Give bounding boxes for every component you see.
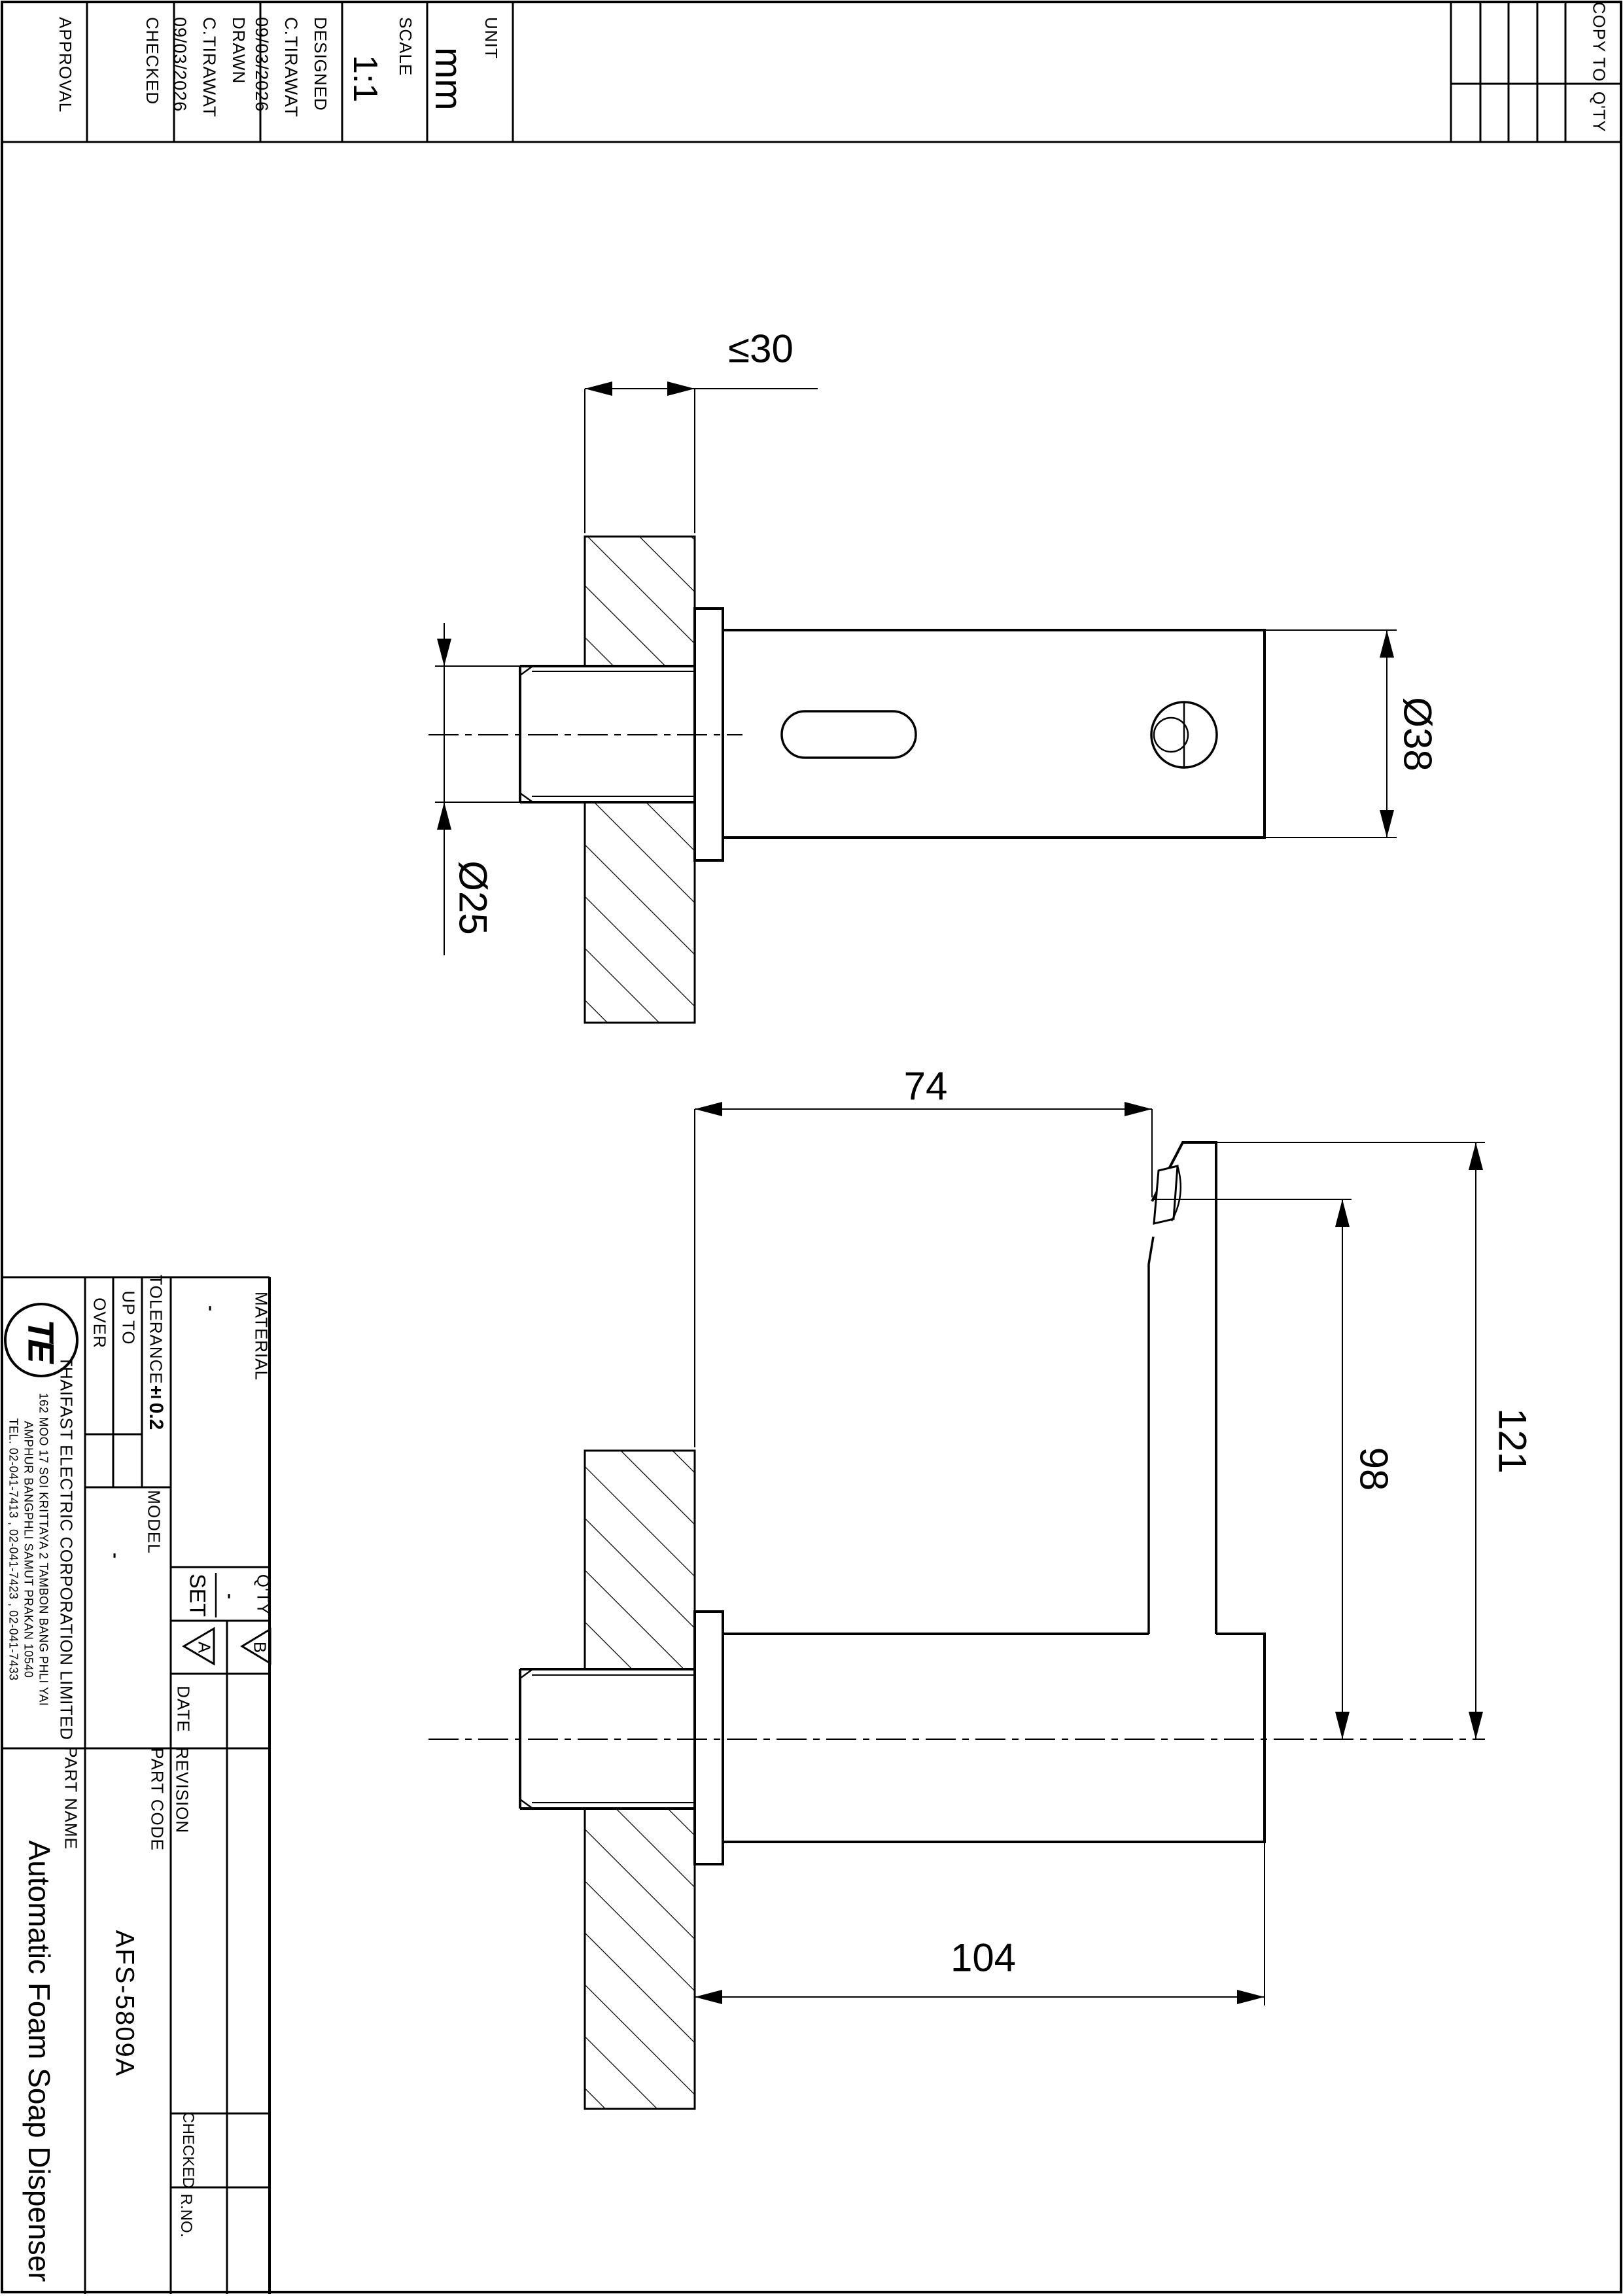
model-value: - [106,1553,126,1559]
date-label: DATE [173,1686,194,1732]
cell-approval: APPROVAL [0,0,87,140]
view-side-section [428,381,1397,1023]
model-label: MODEL [144,1490,164,1553]
material-value: - [201,1305,222,1312]
drawing-sheet: APPROVAL CHECKED DRAWN C.TIRAWAT 09/03/2… [0,0,1623,2296]
approval-label: APPROVAL [55,17,75,140]
part-code-value: AFS-5809A [110,1930,139,2077]
scale-label: SCALE [395,17,415,140]
company-address-1: 162 MOO 17 SOI KRITTAYA 2 TAMBON BANG PH… [37,1393,50,1706]
cell-drawn: DRAWN C.TIRAWAT 09/03/2026 [174,0,260,140]
designed-date: 09/03/2026 [251,17,271,140]
cell-scale: SCALE 1:1 [342,0,427,140]
revision-label: REVISION [172,1747,192,1833]
dim-wall-max: ≤30 [728,327,794,372]
dim-nozzle-height: 98 [1352,1447,1397,1491]
set-label: SET [184,1574,210,1617]
drawn-date: 09/03/2026 [169,17,190,140]
designed-name: C.TIRAWAT [281,17,301,140]
company-name: THAIFAST ELECTRIC CORPORATION LIMITED [56,1356,77,1740]
qty-label: Q'TY [253,1574,273,1615]
rno-label: R.NO. [177,2194,195,2238]
copy-qty-label: Q'TY [1589,92,1609,132]
drawing-canvas [0,0,1623,2296]
material-label: MATERIAL [251,1292,271,1381]
unit-value: mm [427,17,470,140]
designed-label: DESIGNED [310,17,330,140]
cell-checked: CHECKED [87,0,174,140]
dim-total-height: 121 [1490,1408,1535,1474]
sheet-frame [2,2,1621,2292]
dim-body-length: 104 [951,1935,1016,1981]
checked-label: CHECKED [142,17,162,140]
drawn-name: C.TIRAWAT [199,17,219,140]
over-label: OVER [90,1298,110,1349]
dim-spout-offset: 74 [904,1064,948,1109]
copy-to-label: COPY TO [1589,2,1609,82]
cell-unit: UNIT mm [427,0,513,140]
cell-designed: DESIGNED C.TIRAWAT 09/03/2026 [260,0,342,140]
company-logo-icon: TE [20,1319,63,1361]
dim-stem-dia: Ø25 [451,860,496,934]
scale-value: 1:1 [345,17,385,140]
checked-cell-label: CHECKED [179,2111,197,2188]
finish-grade-b: B [250,1642,270,1653]
set-value: - [220,1593,241,1600]
company-address-3: TEL. 02-041-7413 , 02-041-7423 , 02-041-… [7,1418,20,1680]
tolerance-label: TOLERANCE [146,1275,166,1384]
unit-label: UNIT [481,17,501,140]
finish-grade-a: A [194,1642,215,1653]
dim-body-dia: Ø38 [1395,697,1440,771]
drawn-label: DRAWN [228,17,249,140]
tolerance-value: ±0.2 [145,1381,167,1430]
up-to-label: UP TO [118,1290,139,1345]
part-name-label: PART NAME [61,1746,81,1850]
part-name-value: Automatic Foam Soap Dispenser [22,1841,57,2282]
part-code-label: PART CODE [147,1748,167,1851]
company-address-2: AMPHUR BANGPHLI SAMUT PRAKAN 10540 [22,1421,35,1678]
